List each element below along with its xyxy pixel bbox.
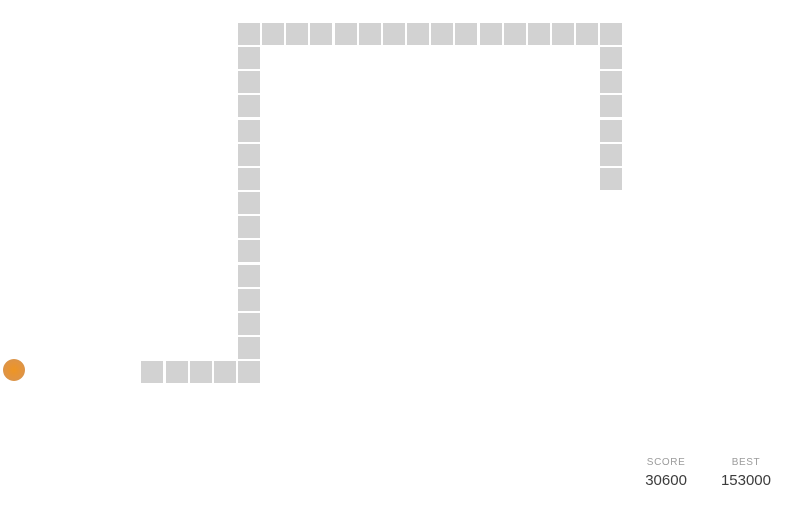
snake-segment	[286, 23, 308, 45]
score-label: SCORE	[645, 457, 687, 468]
snake-segment	[407, 23, 429, 45]
snake-segment	[359, 23, 381, 45]
snake-segment	[600, 120, 622, 142]
snake-segment	[141, 361, 163, 383]
scoreboard: SCORE 30600 BEST 153000	[645, 457, 771, 489]
best-value: 153000	[721, 472, 771, 489]
snake-segment	[262, 23, 284, 45]
snake-segment	[238, 144, 260, 166]
snake-segment	[600, 23, 622, 45]
snake-segment	[600, 168, 622, 190]
snake-segment	[238, 47, 260, 69]
snake-segment	[238, 168, 260, 190]
best-panel: BEST 153000	[721, 457, 771, 489]
snake-segment	[238, 337, 260, 359]
snake-segment	[455, 23, 477, 45]
snake-segment	[238, 313, 260, 335]
snake-segment	[238, 216, 260, 238]
snake-segment	[238, 265, 260, 287]
snake-segment	[238, 240, 260, 262]
snake-segment	[600, 47, 622, 69]
snake-segment	[238, 23, 260, 45]
snake-segment	[238, 361, 260, 383]
game-board[interactable]	[0, 0, 794, 520]
snake-segment	[214, 361, 236, 383]
score-panel: SCORE 30600	[645, 457, 687, 489]
snake-segment	[552, 23, 574, 45]
snake-segment	[431, 23, 453, 45]
snake-segment	[238, 192, 260, 214]
snake-segment	[335, 23, 357, 45]
snake-segment	[310, 23, 332, 45]
game-stage: SCORE 30600 BEST 153000	[0, 0, 794, 520]
snake-segment	[600, 95, 622, 117]
snake-segment	[238, 289, 260, 311]
snake-segment	[528, 23, 550, 45]
snake-segment	[600, 144, 622, 166]
snake-segment	[238, 71, 260, 93]
snake-segment	[238, 120, 260, 142]
snake-segment	[504, 23, 526, 45]
snake-segment	[166, 361, 188, 383]
snake-segment	[576, 23, 598, 45]
score-value: 30600	[645, 472, 687, 489]
best-label: BEST	[721, 457, 771, 468]
snake-segment	[600, 71, 622, 93]
food	[3, 359, 25, 381]
snake-segment	[190, 361, 212, 383]
snake-segment	[480, 23, 502, 45]
snake-segment	[238, 95, 260, 117]
snake-segment	[383, 23, 405, 45]
